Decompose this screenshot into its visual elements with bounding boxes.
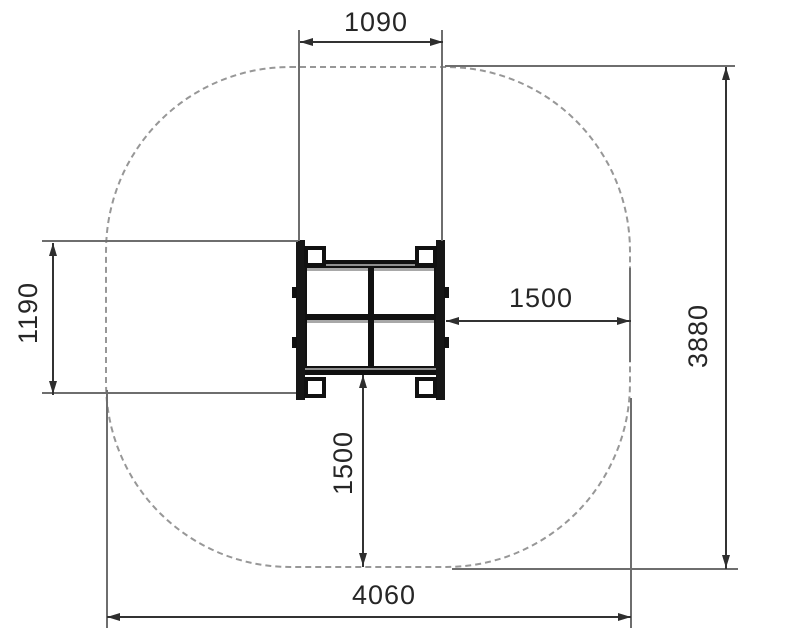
side-bracket-left-lower bbox=[292, 337, 297, 348]
arrowhead-right-icon bbox=[618, 613, 631, 621]
dimension-line bbox=[446, 320, 631, 322]
dim-label-total-height: 3880 bbox=[683, 296, 713, 376]
deck-panel bbox=[307, 268, 368, 314]
side-bracket-left-upper bbox=[292, 287, 297, 298]
equipment-bottom-rail bbox=[305, 368, 436, 375]
dimension-line bbox=[725, 67, 727, 569]
equipment-deck-grid bbox=[305, 266, 436, 368]
arrowhead-left-icon bbox=[300, 38, 313, 46]
arrowhead-up-icon bbox=[722, 67, 730, 80]
arrowhead-left-icon bbox=[446, 317, 459, 325]
arrowhead-right-icon bbox=[617, 317, 630, 325]
corner-post-top-right bbox=[415, 246, 437, 267]
side-bracket-right-lower bbox=[444, 337, 449, 348]
dim-label-height-left: 1190 bbox=[13, 273, 43, 353]
deck-panel bbox=[307, 320, 368, 366]
installation-plan-drawing: 1090 1190 1500 1500 3880 bbox=[0, 0, 802, 644]
dim-label-width-top: 1090 bbox=[336, 7, 416, 37]
extension-line bbox=[298, 30, 300, 241]
extension-line bbox=[441, 30, 443, 241]
equipment-plan-view bbox=[296, 240, 445, 400]
deck-panel bbox=[374, 268, 435, 314]
dim-label-clearance-bottom: 1500 bbox=[328, 423, 358, 503]
extension-line bbox=[629, 268, 631, 362]
extension-line bbox=[452, 568, 738, 570]
arrowhead-right-icon bbox=[430, 38, 443, 46]
equipment-right-beam bbox=[436, 240, 445, 400]
corner-post-top-left bbox=[304, 246, 326, 267]
arrowhead-down-icon bbox=[722, 555, 730, 568]
extension-line bbox=[630, 398, 632, 628]
corner-post-bottom-left bbox=[304, 377, 326, 398]
extension-line bbox=[445, 65, 735, 67]
arrowhead-up-icon bbox=[49, 243, 57, 256]
arrowhead-left-icon bbox=[107, 613, 120, 621]
dimension-line bbox=[362, 375, 364, 567]
arrowhead-down-icon bbox=[49, 381, 57, 394]
side-bracket-right-upper bbox=[444, 287, 449, 298]
dimension-line bbox=[300, 41, 443, 43]
dim-label-clearance-right: 1500 bbox=[501, 283, 581, 313]
arrowhead-up-icon bbox=[359, 375, 367, 388]
dimension-line bbox=[107, 616, 631, 618]
extension-line bbox=[42, 240, 298, 242]
arrowhead-down-icon bbox=[359, 553, 367, 566]
dimension-line bbox=[52, 243, 54, 395]
corner-post-bottom-right bbox=[415, 377, 437, 398]
extension-line bbox=[42, 392, 296, 394]
dim-label-total-width: 4060 bbox=[344, 580, 424, 610]
extension-line bbox=[106, 390, 108, 628]
deck-panel bbox=[374, 320, 435, 366]
